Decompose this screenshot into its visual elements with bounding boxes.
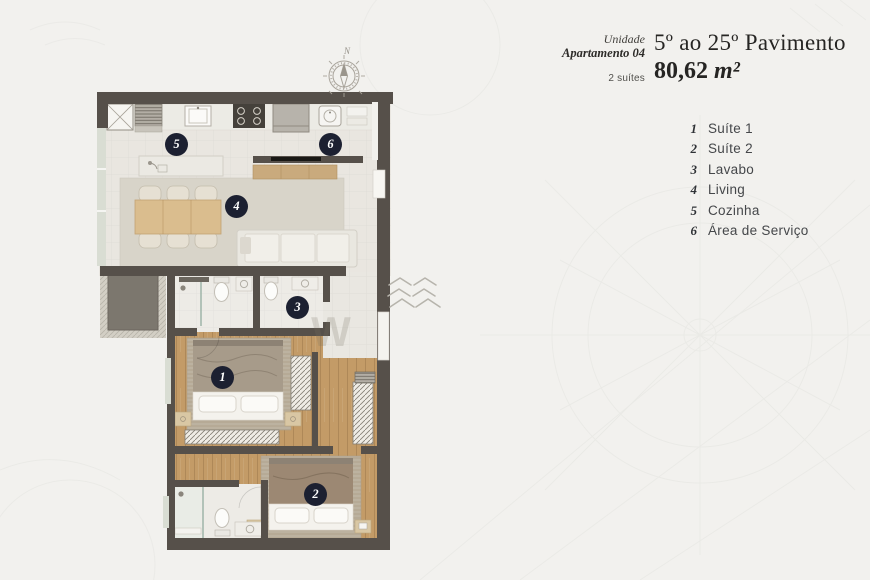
suite1-furniture: [175, 338, 301, 430]
legend-num: 6: [686, 223, 697, 239]
shaft-icon: [107, 104, 133, 130]
legend-label: Suíte 1: [708, 121, 753, 136]
legend-num: 1: [686, 121, 697, 137]
suites-note: 2 suítes: [500, 73, 645, 84]
wardrobe-suite2: [353, 382, 373, 444]
laundry-sink-icon: [319, 106, 341, 126]
ac-box: [373, 170, 385, 198]
sofa: [237, 230, 357, 267]
wardrobe-suite1-bottom: [185, 430, 279, 444]
legend-item: 5Cozinha: [686, 203, 809, 223]
legend-item: 1Suíte 1: [686, 121, 809, 141]
wardrobe-suite1-side: [291, 356, 311, 410]
pillow-icon: [314, 508, 348, 523]
headboard: [193, 340, 283, 346]
area-unit: m²: [714, 58, 740, 84]
room-marker-lavabo: 3: [286, 296, 309, 319]
floors-range: 5º ao 25º Pavimento: [654, 30, 846, 56]
legend-label: Suíte 2: [708, 141, 753, 156]
unit-area: 80,62 m²: [654, 58, 846, 85]
legend-item: 4Living: [686, 182, 809, 202]
legend-num: 2: [686, 141, 697, 157]
unit-header: Unidade Apartamento 04 2 suítes: [500, 33, 645, 84]
legend-num: 4: [686, 182, 697, 198]
kitchen-sink-icon: [185, 106, 211, 126]
legend-item: 2Suíte 2: [686, 141, 809, 161]
compass-rose-icon: N: [317, 42, 375, 100]
towel-rack-icon: [179, 277, 209, 282]
tv-icon: [271, 157, 321, 161]
unit-label: Unidade: [500, 33, 645, 46]
living-window: [97, 128, 106, 266]
toilet-icon: [215, 283, 229, 302]
toilet-icon: [215, 509, 229, 528]
floor-plan: W 1 2 3 4 5 6: [95, 90, 395, 555]
terrace-planter: [100, 270, 166, 338]
compass-north-label: N: [343, 46, 351, 56]
suite1-window: [165, 358, 171, 404]
legend-label: Lavabo: [708, 162, 754, 177]
kitchen-island: [139, 156, 223, 176]
room-legend: 1Suíte 1 2Suíte 2 3Lavabo 4Living 5Cozin…: [686, 121, 809, 243]
toilet-icon: [265, 282, 278, 300]
nightstand-icon: [175, 412, 191, 426]
pillow-icon: [275, 508, 309, 523]
nightstand-icon: [285, 412, 301, 426]
area-value: 80,62: [654, 58, 708, 84]
shower-head-icon: [180, 285, 185, 290]
floor-area-header: 5º ao 25º Pavimento 80,62 m²: [654, 30, 846, 85]
fridge-icon: [273, 104, 309, 132]
pillow-icon: [241, 396, 278, 412]
legend-label: Cozinha: [708, 203, 760, 218]
unit-name: Apartamento 04: [500, 46, 645, 60]
legend-item: 3Lavabo: [686, 162, 809, 182]
shower-head-icon: [178, 491, 183, 496]
right-ledge: [372, 102, 378, 160]
vent-grill-icon: [135, 104, 162, 132]
room-marker-area-servico: 6: [319, 133, 342, 156]
folded-towels-icon: [347, 107, 367, 125]
headboard: [269, 458, 353, 464]
legend-num: 5: [686, 203, 697, 219]
pillow-icon: [199, 396, 236, 412]
stove-icon: [233, 104, 265, 128]
room-marker-suite1: 1: [211, 366, 234, 389]
legend-label: Living: [708, 182, 745, 197]
tv-console: [253, 165, 337, 179]
room-marker-cozinha: 5: [165, 133, 188, 156]
dining-table: [135, 200, 221, 234]
room-marker-suite2: 2: [304, 483, 327, 506]
entrance-door: [378, 312, 389, 360]
room-marker-living: 4: [225, 195, 248, 218]
throw-pillow-icon: [240, 237, 251, 254]
bathroom2-window: [163, 496, 169, 528]
legend-label: Área de Serviço: [708, 223, 809, 238]
brand-watermark: W: [307, 310, 355, 354]
sea-waves-icon: [386, 274, 444, 314]
bed-blanket: [193, 346, 283, 392]
legend-item: 6Área de Serviço: [686, 223, 809, 243]
entry-mat: [355, 372, 375, 383]
legend-num: 3: [686, 162, 697, 178]
